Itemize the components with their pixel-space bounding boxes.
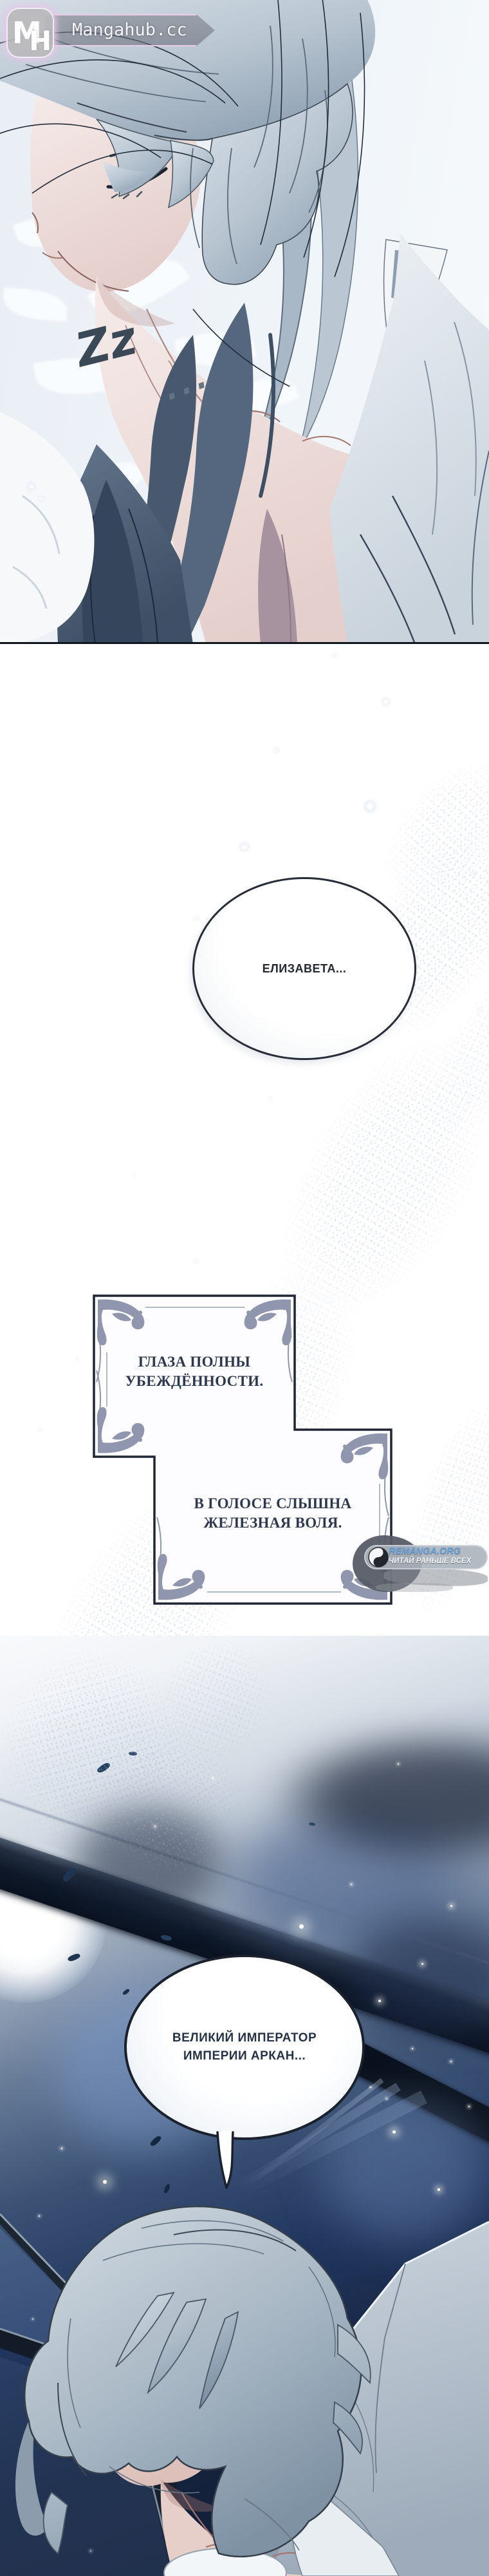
sparkle-dot [194, 1258, 199, 1264]
star [438, 2188, 440, 2191]
sparkle-dot [382, 697, 391, 706]
mangahub-logo-icon: M H [6, 8, 54, 58]
sleep-sfx: Zz ... [71, 314, 142, 374]
star [392, 2130, 396, 2134]
manhwa-page: Zz ... Mangahub.cc M H ЕЛИЗАВЕТА... [0, 0, 489, 2576]
speech-bubble-elizaveta-text: ЕЛИЗАВЕТА... [263, 962, 347, 976]
caption-eyes: ГЛАЗА ПОЛНЫ УБЕЖДЁННОСТИ. [103, 1352, 286, 1391]
glitter-band [383, 1384, 489, 1631]
remanga-brush-streak [376, 1583, 453, 1592]
remanga-tagline: ЧИТАЙ РАНЬШЕ ВСЕХ [389, 1557, 485, 1566]
mangahub-banner-text: Mangahub.cc [72, 20, 187, 40]
caption-eyes-line2: УБЕЖДЁННОСТИ. [103, 1372, 286, 1391]
sparkle-dot [332, 653, 337, 658]
star [370, 2087, 371, 2088]
star [61, 2148, 62, 2149]
sparkle-dot [75, 1357, 79, 1361]
sparkle-dot [38, 496, 44, 502]
ornate-caption-frame [90, 1291, 396, 1607]
sparkle-dot [419, 986, 425, 992]
star [378, 2000, 381, 2002]
star [386, 2098, 387, 2099]
speech-bubble-tail [216, 2131, 242, 2190]
yin-yang-icon [368, 1547, 389, 1567]
caption-voice-line1: В ГОЛОСЕ СЛЫШНА [162, 1494, 383, 1513]
sparkle-dot [27, 482, 35, 491]
caption-voice-line2: ЖЕЛЕЗНАЯ ВОЛЯ. [162, 1513, 383, 1533]
sparkle-dot [440, 929, 448, 936]
sparkle-dot [470, 871, 476, 878]
caption-voice: В ГОЛОСЕ СЛЫШНА ЖЕЛЕЗНАЯ ВОЛЯ. [162, 1494, 383, 1533]
sparkle-dot [132, 1173, 136, 1177]
speech-bubble-emperor: ВЕЛИКИЙ ИМПЕРАТОР ИМПЕРИИ АРКАН... [124, 1955, 365, 2140]
speech-bubble-elizaveta: ЕЛИЗАВЕТА... [192, 877, 416, 1060]
sparkle-dot [273, 747, 280, 753]
speech-bubble-emperor-line2: ИМПЕРИИ АРКАН... [172, 2047, 317, 2066]
mangahub-banner: Mangahub.cc [45, 14, 215, 46]
logo-letter-h: H [29, 25, 51, 57]
sleeping-character-illustration [0, 0, 489, 644]
sparkle-dot [268, 1096, 273, 1101]
star [450, 2061, 452, 2062]
sparkle-dot [364, 800, 376, 813]
sparkle-dot [38, 1428, 42, 1432]
night-character-illustration [13, 2190, 412, 2576]
panel-night-scene: ВЕЛИКИЙ ИМПЕРАТОР ИМПЕРИИ АРКАН... [0, 1636, 489, 2576]
sparkle-dot [194, 915, 199, 921]
speech-bubble-emperor-line1: ВЕЛИКИЙ ИМПЕРАТОР [172, 2029, 317, 2048]
star [398, 1763, 399, 1765]
sparkle-dot [239, 842, 250, 852]
star [412, 2048, 413, 2049]
star [299, 1924, 304, 1929]
star [421, 1963, 423, 1965]
remanga-site: REMANGA.ORG [389, 1547, 485, 1557]
sparkle-dot [477, 1007, 483, 1013]
panel-sleeping-scene: Zz ... Mangahub.cc M H [0, 0, 489, 644]
star [468, 2106, 470, 2107]
star [450, 1905, 452, 1907]
star [351, 1884, 352, 1885]
remanga-text: REMANGA.ORG ЧИТАЙ РАНЬШЕ ВСЕХ [389, 1547, 485, 1566]
caption-eyes-line1: ГЛАЗА ПОЛНЫ [103, 1352, 286, 1372]
star [103, 2180, 107, 2184]
